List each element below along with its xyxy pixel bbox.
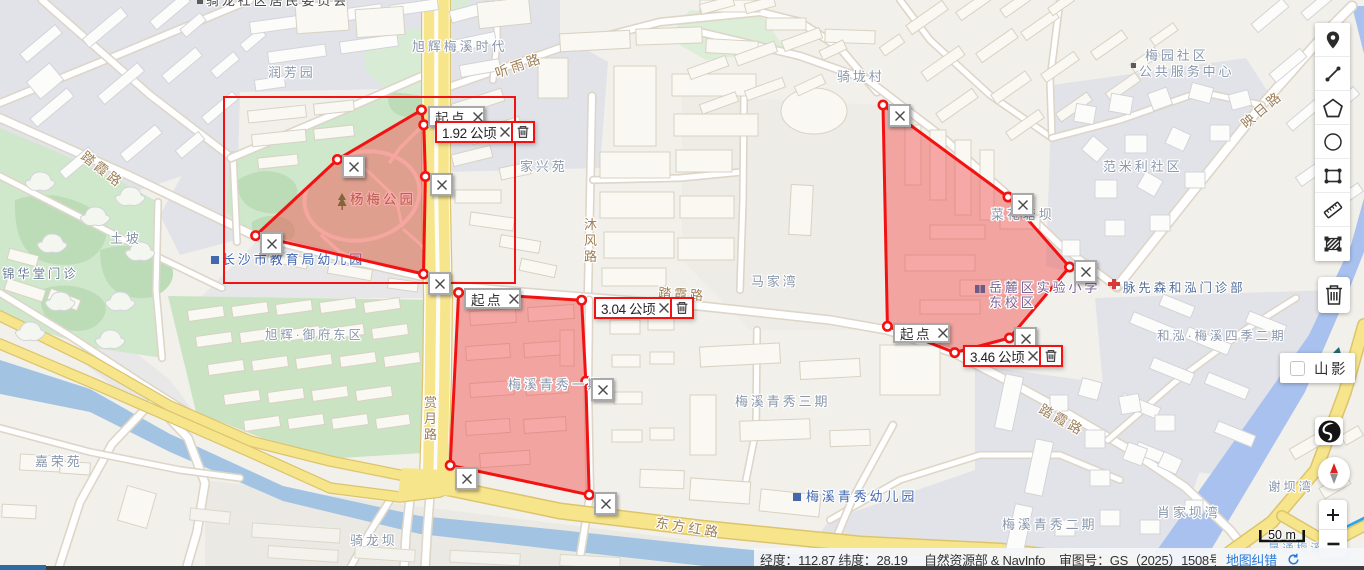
svg-text:谢坝湾: 谢坝湾 — [1268, 479, 1314, 494]
svg-text:肖家坝湾: 肖家坝湾 — [1157, 505, 1221, 520]
svg-text:骑龙社区居民委员会: 骑龙社区居民委员会 — [206, 0, 349, 8]
svg-text:公共服务中心: 公共服务中心 — [1139, 64, 1234, 79]
svg-text:旭辉·御府东区: 旭辉·御府东区 — [265, 327, 364, 342]
svg-text:马家湾: 马家湾 — [751, 274, 799, 289]
svg-text:嘉荣苑: 嘉荣苑 — [35, 454, 83, 469]
svg-text:旭辉梅溪时代: 旭辉梅溪时代 — [412, 39, 507, 54]
svg-text:东校区: 东校区 — [989, 295, 1037, 310]
svg-text:赏: 赏 — [424, 395, 437, 410]
svg-text:路: 路 — [424, 427, 437, 442]
svg-text:土坡: 土坡 — [110, 231, 142, 246]
svg-text:润芳园: 润芳园 — [268, 65, 316, 80]
svg-text:梅溪青秀二期: 梅溪青秀二期 — [1002, 517, 1097, 532]
svg-text:梅溪青秀三期: 梅溪青秀三期 — [735, 394, 830, 409]
svg-text:和泓·梅溪四季二期: 和泓·梅溪四季二期 — [1157, 328, 1286, 343]
svg-text:梅溪青秀一期: 梅溪青秀一期 — [508, 377, 603, 392]
svg-text:路: 路 — [584, 249, 597, 264]
svg-text:沐: 沐 — [584, 217, 597, 232]
svg-text:骑龙坝: 骑龙坝 — [350, 533, 398, 548]
svg-text:骑垅村: 骑垅村 — [837, 69, 885, 84]
svg-text:脉先森和泓门诊部: 脉先森和泓门诊部 — [1123, 280, 1245, 295]
svg-text:梅溪青秀幼儿园: 梅溪青秀幼儿园 — [806, 489, 917, 504]
svg-text:风: 风 — [584, 233, 597, 248]
svg-text:梅园社区: 梅园社区 — [1145, 48, 1209, 63]
svg-text:锦华堂门诊: 锦华堂门诊 — [2, 266, 79, 281]
svg-text:月: 月 — [424, 411, 437, 426]
svg-text:家兴苑: 家兴苑 — [520, 159, 568, 174]
svg-text:范米利社区: 范米利社区 — [1103, 159, 1183, 174]
